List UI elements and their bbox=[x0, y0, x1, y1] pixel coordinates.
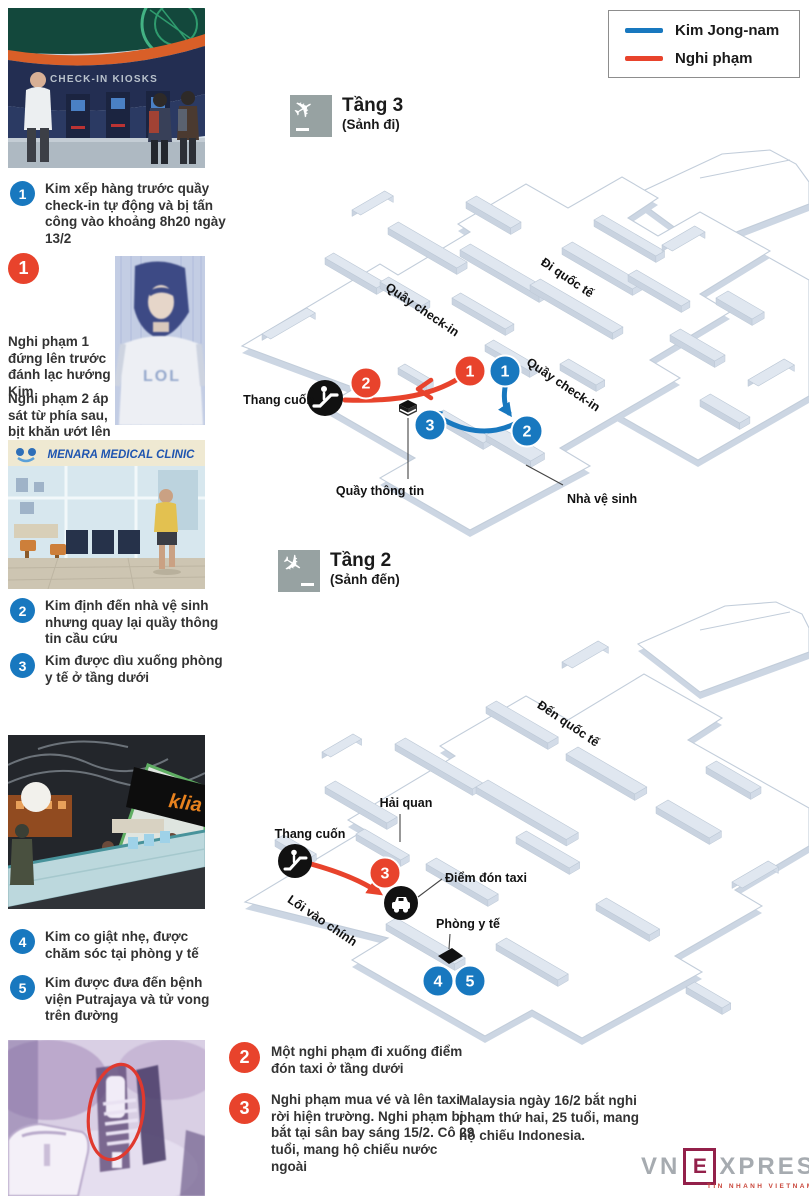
step-kim-1-badge: 1 bbox=[10, 181, 35, 206]
floor2-header: ✈ Tầng 2 (Sảnh đến) bbox=[278, 550, 400, 592]
floor3-subtitle: (Sảnh đi) bbox=[342, 117, 403, 132]
svg-text:1: 1 bbox=[501, 364, 510, 381]
floor3-plates bbox=[242, 150, 809, 537]
floor3-map: Quầy check-in Quầy check-in Đi quốc tế T… bbox=[230, 148, 809, 548]
floor2-map: Đến quốc tế Hải quan Thang cuốn Điểm đón… bbox=[230, 600, 809, 1035]
klia-sign-text: klia bbox=[167, 790, 203, 816]
photo-cctv-art bbox=[8, 1040, 205, 1196]
step-kim-3-badge: 3 bbox=[10, 653, 35, 678]
photo-klia-counter: klia bbox=[8, 735, 205, 909]
clinic-sign-text: MENARA MEDICAL CLINIC bbox=[48, 449, 196, 461]
photo-suspect-cctv: LOL bbox=[115, 256, 205, 425]
label-escalator-f2: Thang cuốn bbox=[275, 827, 346, 841]
step-kim-4-badge: 4 bbox=[10, 929, 35, 954]
floor3-header: ✈ Tầng 3 (Sảnh đi) bbox=[290, 95, 403, 137]
svg-text:2: 2 bbox=[362, 376, 371, 393]
step-kim-5-text: Kim được đưa đến bệnh viện Putrajaya và … bbox=[45, 975, 225, 1025]
photo-medical-clinic: MENARA MEDICAL CLINIC bbox=[8, 440, 205, 589]
suspect-shirt-text: LOL bbox=[143, 368, 181, 385]
legend-line-kim bbox=[625, 28, 663, 33]
label-medical-room: Phòng y tế bbox=[436, 917, 500, 931]
label-customs: Hải quan bbox=[380, 796, 433, 810]
logo-tagline: TIN NHANH VIETNAM bbox=[707, 1183, 809, 1190]
label-toilet: Nhà vệ sinh bbox=[567, 492, 637, 506]
svg-text:1: 1 bbox=[466, 364, 475, 381]
floor3-title: Tầng 3 bbox=[342, 95, 403, 117]
floor2-subtitle: (Sảnh đến) bbox=[330, 572, 400, 587]
step-suspect-2-text: Một nghi phạm đi xuống điểm đón taxi ở t… bbox=[271, 1044, 466, 1077]
vnexpress-logo: VN E XPRESS TIN NHANH VIETNAM bbox=[641, 1148, 809, 1185]
taxi-icon bbox=[384, 886, 418, 920]
label-info-desk: Quầy thông tin bbox=[336, 484, 424, 498]
floor2-plates bbox=[245, 602, 809, 1045]
infographic-page: CHECK-IN KIOSKS bbox=[0, 0, 809, 1200]
svg-text:5: 5 bbox=[466, 974, 475, 991]
photo-checkin-art: CHECK-IN KIOSKS bbox=[8, 8, 205, 168]
step-kim-1-text: Kim xếp hàng trước quầy check-in tự động… bbox=[45, 181, 235, 248]
svg-text:2: 2 bbox=[523, 424, 532, 441]
step-suspect-1-badge: 1 bbox=[8, 253, 39, 284]
legend-label-suspect: Nghi phạm bbox=[675, 50, 753, 67]
step-kim-2-text: Kim định đến nhà vệ sinh nhưng quay lại … bbox=[45, 598, 225, 648]
svg-text:3: 3 bbox=[426, 418, 435, 435]
logo-e-box: E bbox=[683, 1148, 716, 1185]
logo-vn: VN bbox=[641, 1153, 680, 1181]
note-second-arrest: Malaysia ngày 16/2 bắt nghi phạm thứ hai… bbox=[459, 1092, 654, 1144]
floor2-title: Tầng 2 bbox=[330, 550, 400, 572]
svg-text:3: 3 bbox=[381, 866, 390, 883]
logo-xpress: XPRESS bbox=[719, 1153, 809, 1181]
step-suspect-3-text: Nghi phạm mua vé và lên taxi rời hiện tr… bbox=[271, 1092, 476, 1176]
label-escalator-f3: Thang cuốn bbox=[243, 393, 314, 407]
photo-klia-art: klia bbox=[8, 735, 205, 909]
photo-cctv-taxi bbox=[8, 1040, 205, 1196]
arrival-plane-icon: ✈ bbox=[278, 550, 320, 592]
photo-clinic-art: MENARA MEDICAL CLINIC bbox=[8, 440, 205, 589]
step-kim-4-text: Kim co giật nhẹ, được chăm sóc tại phòng… bbox=[45, 929, 225, 962]
svg-text:4: 4 bbox=[434, 974, 443, 991]
step-suspect-2-badge: 2 bbox=[229, 1042, 260, 1073]
label-taxi-pickup: Điểm đón taxi bbox=[445, 871, 527, 885]
checkin-sign-text: CHECK-IN KIOSKS bbox=[50, 74, 158, 85]
photo-checkin-kiosks: CHECK-IN KIOSKS bbox=[8, 8, 205, 168]
legend: Kim Jong-nam Nghi phạm bbox=[608, 10, 800, 78]
step-kim-5-badge: 5 bbox=[10, 975, 35, 1000]
step-suspect-3-badge: 3 bbox=[229, 1093, 260, 1124]
departure-plane-icon: ✈ bbox=[290, 95, 332, 137]
clinic-chairs bbox=[66, 530, 140, 554]
legend-label-kim: Kim Jong-nam bbox=[675, 22, 779, 39]
step-kim-3-text: Kim được dìu xuống phòng y tế ở tầng dướ… bbox=[45, 653, 225, 686]
step-kim-2-badge: 2 bbox=[10, 598, 35, 623]
legend-line-suspect bbox=[625, 56, 663, 61]
escalator-icon-f2 bbox=[278, 844, 312, 878]
photo-suspect-art: LOL bbox=[115, 256, 205, 425]
